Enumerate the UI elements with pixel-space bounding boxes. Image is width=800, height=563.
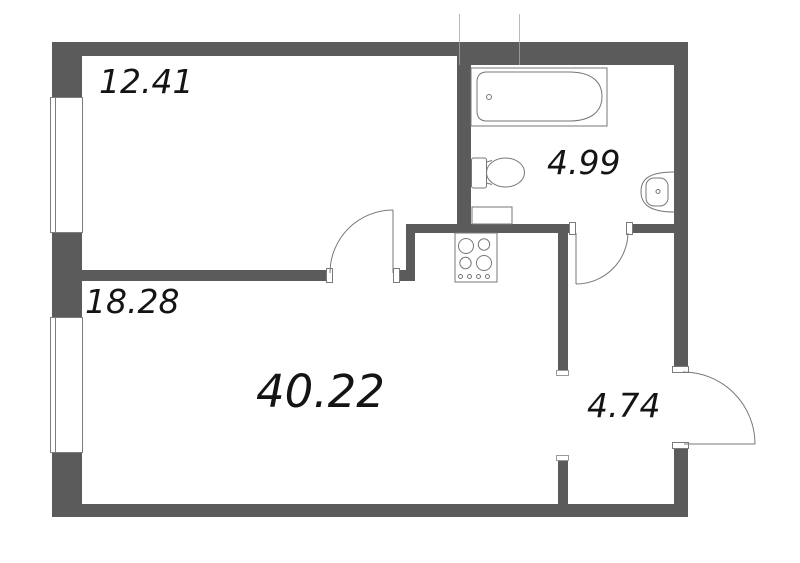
door-jamb — [393, 268, 400, 283]
floor-plan: 12.41 18.28 40.22 4.99 4.74 — [0, 0, 800, 563]
door-jamb — [626, 222, 633, 235]
interior-wall-hallway-lower — [558, 461, 568, 504]
exterior-wall-right-lower — [674, 449, 688, 517]
interior-wall-hallway-upper — [558, 224, 568, 370]
window-pane — [55, 318, 56, 452]
exterior-wall-left-upper — [52, 42, 82, 98]
area-label-bathroom: 4.99 — [547, 146, 620, 179]
door-jamb — [326, 268, 333, 283]
interior-wall-room-divider — [82, 270, 326, 281]
interior-wall-kitchen-right — [632, 224, 674, 233]
door-swing-icon — [683, 372, 755, 444]
door-jamb — [569, 222, 576, 235]
toilet-icon — [472, 158, 525, 188]
door-swing-icon — [576, 233, 628, 284]
interior-wall-bathroom-divider — [457, 42, 471, 233]
bathtub-icon — [471, 68, 607, 126]
stove-icon — [455, 233, 497, 282]
sink-icon — [641, 172, 674, 212]
area-label-left-room: 18.28 — [85, 285, 179, 318]
area-label-top-left-room: 12.41 — [99, 65, 193, 98]
door-swing-icon — [330, 210, 393, 273]
exterior-wall-bottom — [52, 504, 688, 517]
exterior-wall-right-upper — [674, 42, 688, 367]
exterior-wall-left-middle — [52, 232, 82, 317]
interior-wall-kitchen-left — [406, 224, 569, 233]
interior-wall-room-divider-stub — [399, 270, 415, 281]
washing-machine-icon — [472, 207, 512, 224]
window-icon — [50, 97, 83, 233]
window-pane — [55, 98, 56, 232]
area-label-hallway: 4.74 — [587, 389, 660, 422]
door-jamb — [672, 366, 689, 373]
passage-jamb — [556, 370, 569, 376]
passage-jamb — [556, 455, 569, 461]
exterior-wall-top-left — [52, 42, 457, 56]
area-label-main-room: 40.22 — [256, 369, 385, 414]
door-jamb — [672, 442, 689, 449]
exterior-wall-top-right — [457, 42, 688, 65]
window-icon — [50, 317, 83, 453]
